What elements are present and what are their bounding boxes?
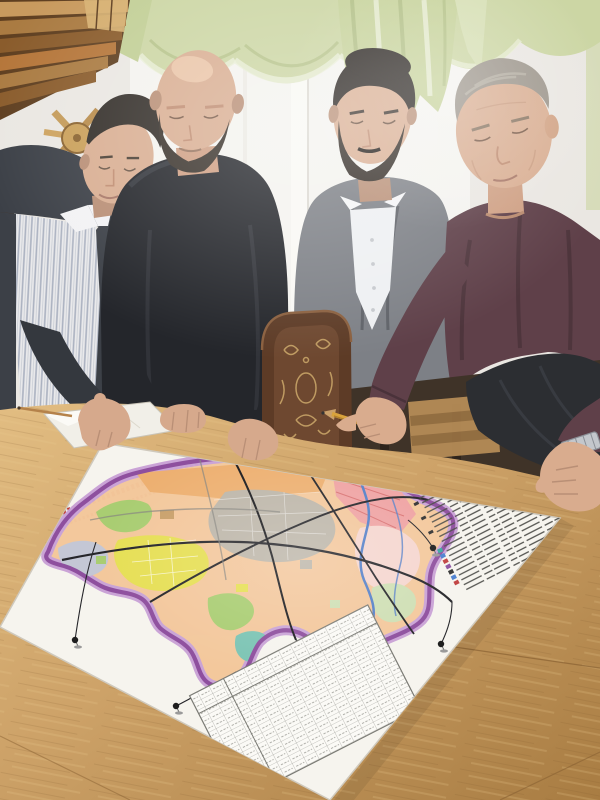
photo-canvas <box>0 0 600 800</box>
photo-four-men-with-city-plan <box>0 0 600 800</box>
